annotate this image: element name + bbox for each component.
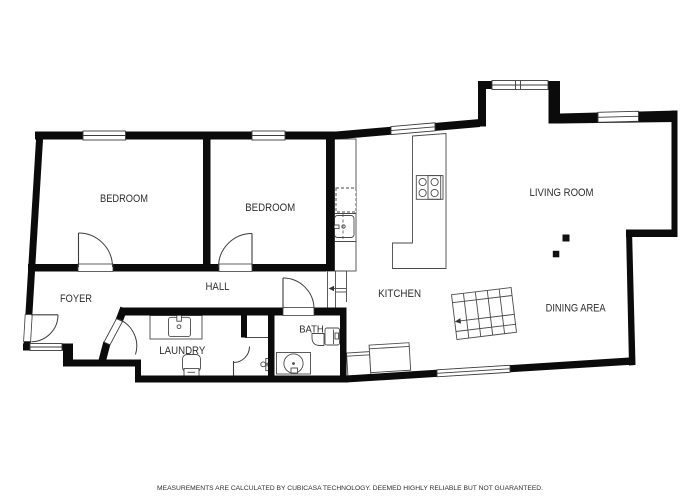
svg-text:FOYER: FOYER [60, 293, 92, 305]
svg-text:BATH: BATH [299, 323, 324, 335]
svg-text:BEDROOM: BEDROOM [245, 202, 295, 214]
svg-text:LIVING ROOM: LIVING ROOM [530, 187, 594, 199]
svg-text:HALL: HALL [206, 281, 230, 293]
svg-text:KITCHEN: KITCHEN [378, 288, 421, 300]
svg-text:BEDROOM: BEDROOM [100, 193, 148, 205]
svg-text:DINING AREA: DINING AREA [546, 303, 607, 315]
svg-text:LAUNDRY: LAUNDRY [159, 345, 206, 357]
svg-text:MEASUREMENTS ARE CALCULATED BY: MEASUREMENTS ARE CALCULATED BY CUBICASA … [157, 485, 543, 492]
